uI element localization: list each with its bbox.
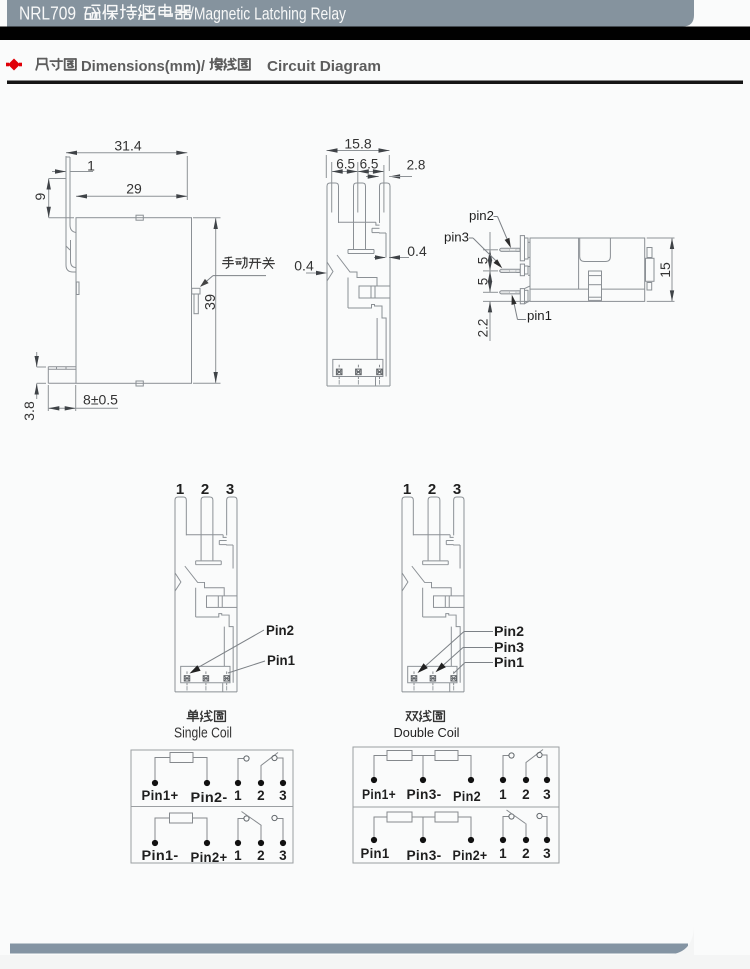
svg-text:Pin2: Pin2 bbox=[266, 623, 294, 638]
svg-text:6.5: 6.5 bbox=[360, 157, 379, 172]
svg-text:Pin3-: Pin3- bbox=[407, 787, 442, 802]
svg-text:1: 1 bbox=[403, 481, 411, 498]
svg-text:Pin2+: Pin2+ bbox=[191, 850, 228, 865]
svg-text:31.4: 31.4 bbox=[114, 137, 141, 153]
svg-text:6.5: 6.5 bbox=[336, 157, 355, 172]
svg-text:Pin3: Pin3 bbox=[494, 640, 525, 655]
svg-text:29: 29 bbox=[126, 181, 142, 197]
svg-text:5: 5 bbox=[476, 257, 491, 265]
svg-text:Pin1: Pin1 bbox=[494, 655, 525, 670]
svg-text:2: 2 bbox=[522, 787, 530, 802]
svg-text:Pin2: Pin2 bbox=[494, 624, 524, 639]
svg-text:1: 1 bbox=[499, 787, 507, 802]
svg-text:2: 2 bbox=[522, 846, 530, 861]
svg-text:3: 3 bbox=[226, 481, 234, 498]
svg-text:3: 3 bbox=[279, 788, 287, 803]
svg-text:Pin2-: Pin2- bbox=[191, 790, 228, 805]
svg-text:Pin2+: Pin2+ bbox=[453, 848, 488, 863]
svg-text:2: 2 bbox=[257, 788, 265, 803]
svg-text:Pin1: Pin1 bbox=[361, 846, 390, 861]
svg-text:3: 3 bbox=[453, 481, 461, 498]
svg-text:8±0.5: 8±0.5 bbox=[83, 391, 118, 407]
svg-text:2: 2 bbox=[428, 481, 436, 498]
svg-text:3: 3 bbox=[543, 787, 551, 802]
svg-text:2: 2 bbox=[201, 481, 209, 498]
svg-text:15.8: 15.8 bbox=[344, 135, 371, 151]
svg-text:Dimensions(mm)/: Dimensions(mm)/ bbox=[81, 58, 206, 75]
svg-text:Circuit Diagram: Circuit Diagram bbox=[267, 58, 381, 75]
svg-text:/Magnetic Latching Relay: /Magnetic Latching Relay bbox=[190, 4, 346, 24]
svg-text:pin2: pin2 bbox=[469, 208, 494, 223]
svg-text:Pin1-: Pin1- bbox=[142, 848, 179, 863]
svg-text:Pin2: Pin2 bbox=[453, 789, 481, 804]
svg-text:15: 15 bbox=[657, 262, 673, 278]
svg-text:pin1: pin1 bbox=[527, 308, 552, 323]
svg-text:0.4: 0.4 bbox=[407, 243, 427, 259]
svg-text:3: 3 bbox=[279, 848, 287, 863]
svg-text:1: 1 bbox=[234, 848, 242, 863]
svg-text:Pin1+: Pin1+ bbox=[142, 788, 179, 803]
svg-text:2.8: 2.8 bbox=[407, 157, 426, 172]
svg-text:3: 3 bbox=[543, 846, 551, 861]
svg-text:0.4: 0.4 bbox=[294, 257, 314, 273]
svg-text:1: 1 bbox=[234, 788, 242, 803]
svg-text:pin3: pin3 bbox=[444, 230, 469, 245]
svg-text:Pin3-: Pin3- bbox=[407, 848, 442, 863]
svg-text:Pin1+: Pin1+ bbox=[362, 787, 396, 802]
svg-text:2.2: 2.2 bbox=[476, 319, 491, 338]
svg-text:39: 39 bbox=[203, 294, 219, 310]
svg-text:NRL709: NRL709 bbox=[19, 4, 76, 24]
svg-text:Pin1: Pin1 bbox=[267, 653, 295, 668]
svg-text:2: 2 bbox=[257, 848, 265, 863]
svg-text:1: 1 bbox=[499, 846, 507, 861]
svg-text:9: 9 bbox=[32, 192, 48, 200]
svg-text:1: 1 bbox=[176, 481, 184, 498]
svg-text:Double Coil: Double Coil bbox=[394, 725, 460, 740]
svg-text:Single Coil: Single Coil bbox=[174, 726, 232, 742]
svg-text:5: 5 bbox=[476, 278, 491, 286]
svg-text:3.8: 3.8 bbox=[21, 401, 37, 421]
